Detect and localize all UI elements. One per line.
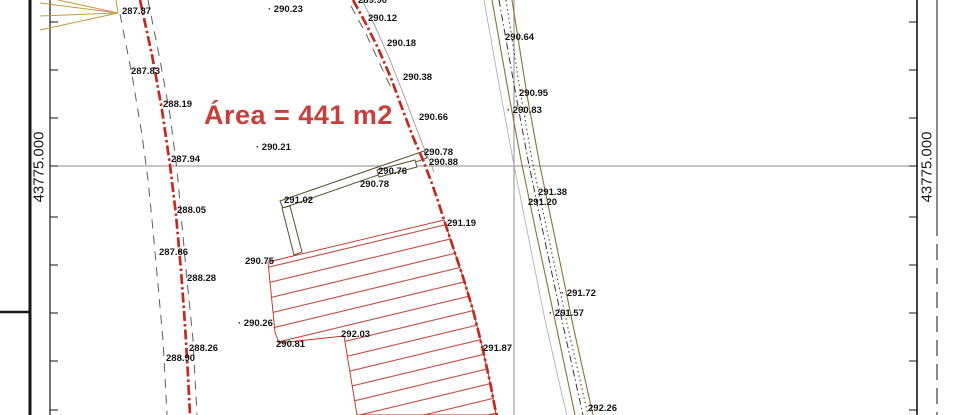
elevation-label: 290.81 [276, 339, 305, 350]
elevation-label: 289.90 [358, 0, 387, 6]
grid-coordinate-label-right: 43775.000 [919, 132, 936, 203]
elevation-label: 291.02 [284, 195, 313, 206]
elevation-label: 288.28 [187, 273, 216, 284]
elevation-label: 288.90 [166, 353, 195, 364]
elevation-label: 290.78 [360, 179, 389, 190]
elevation-label: 290.88 [429, 157, 458, 168]
elevation-label: · 290.26 [238, 318, 273, 329]
elevation-label: · 291.57 [549, 308, 584, 319]
elevation-label: 290.18 [387, 38, 416, 49]
elevation-label: · 290.83 [507, 105, 542, 116]
elevation-label: 291.20 [528, 197, 557, 208]
elevation-label: 292.03 [341, 329, 370, 340]
elevation-label: 287.94 [171, 154, 200, 165]
elevation-label: 288.19 [163, 99, 192, 110]
elevation-label: · 291.72 [561, 288, 596, 299]
map-canvas: 287.87287.83288.19· 290.23289.90290.1229… [0, 0, 960, 415]
elevation-label: 287.87 [122, 6, 151, 17]
elevation-label: 290.12 [368, 13, 397, 24]
elevation-label: 290.75 [245, 256, 274, 267]
elevation-label: 290.76 [378, 166, 407, 177]
elevation-label: 290.66 [419, 112, 448, 123]
elevation-label: 287.86 [159, 247, 188, 258]
elevation-label: 292.26 [588, 403, 617, 414]
elevation-label: 290.64 [505, 32, 534, 43]
elevation-label: 291.87 [483, 343, 512, 354]
elevation-label: · 290.21 [256, 142, 291, 153]
area-annotation: Área = 441 m2 [204, 100, 393, 131]
survey-linework [0, 0, 960, 415]
grid-coordinate-label-left: 43775.000 [31, 132, 48, 203]
elevation-label: 288.05 [177, 205, 206, 216]
hatched-parcel-area [268, 220, 496, 415]
elevation-label: 290.38 [403, 72, 432, 83]
survey-ray-fan [40, 0, 118, 30]
elevation-label: 290.95 [519, 88, 548, 99]
elevation-label: 287.83 [131, 66, 160, 77]
elevation-label: 291.19 [447, 218, 476, 229]
elevation-label: · 290.23 [268, 4, 303, 15]
